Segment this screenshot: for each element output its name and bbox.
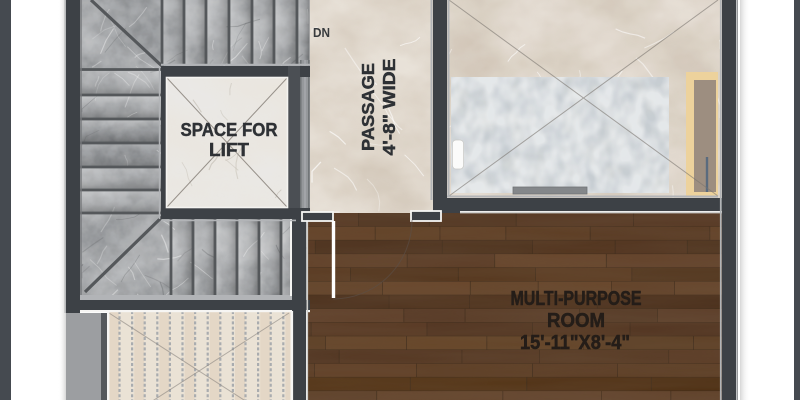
svg-text:DN: DN	[313, 26, 330, 40]
svg-text:LIFT: LIFT	[209, 140, 249, 160]
svg-text:4'-8" WIDE: 4'-8" WIDE	[379, 59, 399, 156]
svg-text:15'-11"X8'-4": 15'-11"X8'-4"	[520, 332, 630, 354]
svg-text:SPACE FOR: SPACE FOR	[181, 120, 278, 140]
svg-text:PASSAGE: PASSAGE	[358, 63, 378, 151]
svg-text:MULTI-PURPOSE: MULTI-PURPOSE	[511, 288, 642, 310]
svg-text:ROOM: ROOM	[547, 310, 605, 332]
